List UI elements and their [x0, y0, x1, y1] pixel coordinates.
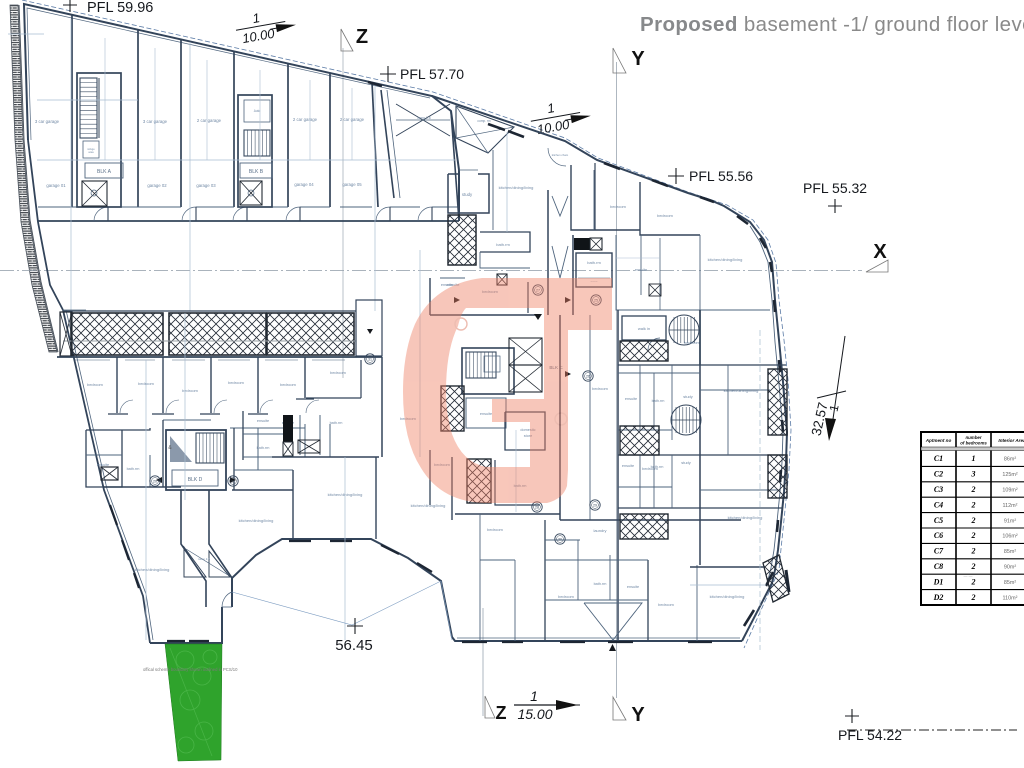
svg-text:garage 02: garage 02: [147, 183, 167, 188]
svg-text:bedroom: bedroom: [684, 340, 700, 345]
svg-text:30: 30: [558, 538, 562, 542]
svg-text:PFL 55.32: PFL 55.32: [803, 180, 867, 196]
svg-text:bedroom: bedroom: [280, 382, 296, 387]
svg-text:ensuite: ensuite: [441, 283, 453, 287]
svg-text:kitchen/dining/living: kitchen/dining/living: [499, 185, 534, 190]
svg-text:1: 1: [972, 454, 976, 463]
svg-text:laundry: laundry: [593, 528, 606, 533]
svg-text:kitchen cham: kitchen cham: [552, 153, 569, 157]
svg-text:ensuite: ensuite: [622, 464, 634, 468]
svg-text:Y: Y: [631, 48, 645, 70]
svg-text:kitchen/dining/living: kitchen/dining/living: [708, 257, 743, 262]
svg-text:C3: C3: [934, 485, 943, 494]
svg-text:bedroom: bedroom: [657, 213, 673, 218]
svg-text:Aptment no: Aptment no: [925, 438, 952, 443]
svg-text:study: study: [681, 460, 691, 465]
svg-text:kitchen/dining/living: kitchen/dining/living: [724, 388, 759, 393]
svg-text:kitchen/dining/living: kitchen/dining/living: [239, 518, 274, 523]
svg-text:— —: — —: [963, 573, 972, 578]
svg-text:garage 05: garage 05: [342, 182, 362, 187]
svg-text:Z: Z: [356, 26, 368, 48]
svg-text:bath.rm: bath.rm: [594, 582, 607, 586]
svg-text:2: 2: [971, 500, 976, 509]
svg-text:area: area: [88, 150, 94, 154]
svg-text:C1: C1: [934, 454, 943, 463]
svg-text:20: 20: [153, 480, 157, 484]
svg-text:2: 2: [971, 485, 976, 494]
svg-text:D2: D2: [933, 593, 944, 602]
svg-text:112m²: 112m²: [1003, 503, 1018, 509]
svg-text:1: 1: [530, 688, 538, 704]
svg-text:PFL 59.96: PFL 59.96: [87, 0, 153, 16]
svg-text:90m²: 90m²: [1004, 565, 1016, 571]
svg-text:Proposed basement -1/ ground f: Proposed basement -1/ ground floor leve: [640, 13, 1024, 36]
svg-text:D1: D1: [933, 577, 944, 586]
svg-text:C8: C8: [934, 562, 943, 571]
svg-text:PFL 54.22: PFL 54.22: [838, 727, 902, 743]
svg-text:garage 04: garage 04: [294, 182, 314, 187]
svg-text:bath.rm: bath.rm: [651, 465, 664, 469]
svg-text:bedroom: bedroom: [558, 594, 574, 599]
svg-text:Auto: Auto: [254, 109, 261, 113]
svg-text:110m²: 110m²: [1003, 595, 1018, 601]
svg-text:29: 29: [593, 504, 597, 508]
svg-text:study: study: [462, 192, 473, 197]
svg-text:ensuite: ensuite: [97, 463, 109, 467]
svg-text:C4: C4: [934, 500, 943, 509]
svg-text:Interior Area: Interior Area: [998, 438, 1024, 443]
svg-text:125m²: 125m²: [1002, 472, 1017, 478]
svg-text:garage 01: garage 01: [46, 183, 66, 188]
svg-text:bedroom: bedroom: [182, 388, 198, 393]
svg-text:ensuite: ensuite: [625, 397, 637, 401]
svg-text:garage 03: garage 03: [196, 183, 216, 188]
svg-text:C7: C7: [934, 547, 944, 556]
svg-text:3: 3: [971, 470, 976, 479]
svg-text:number: number: [965, 435, 981, 440]
svg-text:2 car garage: 2 car garage: [293, 117, 318, 122]
svg-text:PFL 55.56: PFL 55.56: [689, 168, 753, 184]
svg-text:bath.rm: bath.rm: [330, 421, 343, 425]
svg-text:BLK D: BLK D: [188, 477, 203, 483]
svg-text:2: 2: [971, 577, 976, 586]
svg-text:91m²: 91m²: [1004, 518, 1016, 524]
svg-text:BLK A: BLK A: [97, 169, 112, 175]
svg-text:ensuite: ensuite: [480, 412, 492, 416]
svg-text:study: study: [683, 394, 693, 399]
svg-text:walk in: walk in: [638, 326, 650, 331]
svg-text:2: 2: [971, 516, 976, 525]
svg-text:56.45: 56.45: [335, 637, 373, 654]
svg-text:2: 2: [971, 531, 976, 540]
svg-text:bedroom: bedroom: [330, 370, 346, 375]
svg-text:ensuite: ensuite: [627, 585, 639, 589]
svg-text:28: 28: [535, 506, 539, 510]
svg-text:bath.rm: bath.rm: [496, 242, 510, 247]
svg-text:ramp 1:8: ramp 1:8: [417, 116, 430, 120]
svg-text:kitchen/dining/living: kitchen/dining/living: [411, 503, 446, 508]
svg-text:kitchen/dining/living: kitchen/dining/living: [135, 567, 170, 572]
svg-text:2: 2: [971, 593, 976, 602]
svg-text:X: X: [873, 241, 887, 263]
svg-text:31: 31: [368, 358, 372, 362]
svg-text:ramp 1:5: ramp 1:5: [198, 557, 210, 561]
svg-text:Z: Z: [496, 703, 507, 723]
svg-text:bedroom: bedroom: [87, 382, 103, 387]
svg-text:2: 2: [971, 547, 976, 556]
svg-text:bath.rm: bath.rm: [257, 446, 270, 450]
svg-text:Y: Y: [631, 704, 645, 726]
svg-text:of bedrooms: of bedrooms: [960, 441, 987, 446]
svg-text:C6: C6: [934, 531, 943, 540]
svg-text:3 car garage: 3 car garage: [35, 119, 60, 124]
svg-text:15.00: 15.00: [517, 706, 552, 722]
svg-text:bedroom: bedroom: [228, 380, 244, 385]
svg-text:109m²: 109m²: [1002, 488, 1017, 494]
svg-text:ensuite: ensuite: [257, 419, 269, 423]
svg-text:106m²: 106m²: [1002, 534, 1017, 540]
svg-text:BLK B: BLK B: [249, 169, 264, 175]
svg-text:21: 21: [231, 480, 235, 484]
svg-text:comp. rm: comp. rm: [477, 119, 491, 123]
svg-text:85m²: 85m²: [1004, 580, 1016, 586]
svg-text:26: 26: [586, 375, 590, 379]
svg-text:offical scheme boundary shown: offical scheme boundary shown outlined i…: [143, 667, 238, 672]
svg-text:86m²: 86m²: [1004, 457, 1016, 463]
svg-text:2: 2: [971, 562, 976, 571]
svg-text:bath.rm: bath.rm: [587, 260, 601, 265]
svg-text:bedroom: bedroom: [610, 204, 626, 209]
svg-text:ensuite: ensuite: [635, 268, 647, 272]
svg-text:bedroom: bedroom: [592, 386, 608, 391]
svg-text:bath.rm: bath.rm: [127, 467, 140, 471]
svg-text:PFL 57.70: PFL 57.70: [400, 66, 464, 82]
svg-text:kitchen/dining/living: kitchen/dining/living: [710, 594, 745, 599]
svg-text:85m²: 85m²: [1004, 549, 1016, 555]
svg-text:bedroom: bedroom: [487, 527, 503, 532]
svg-text:bedroom: bedroom: [658, 602, 674, 607]
svg-text:2 car garage: 2 car garage: [197, 118, 222, 123]
svg-text:kitchen/dining/living: kitchen/dining/living: [728, 515, 763, 520]
svg-text:bath.rm: bath.rm: [652, 399, 665, 403]
svg-text:C2: C2: [934, 470, 943, 479]
svg-text:C5: C5: [934, 516, 943, 525]
